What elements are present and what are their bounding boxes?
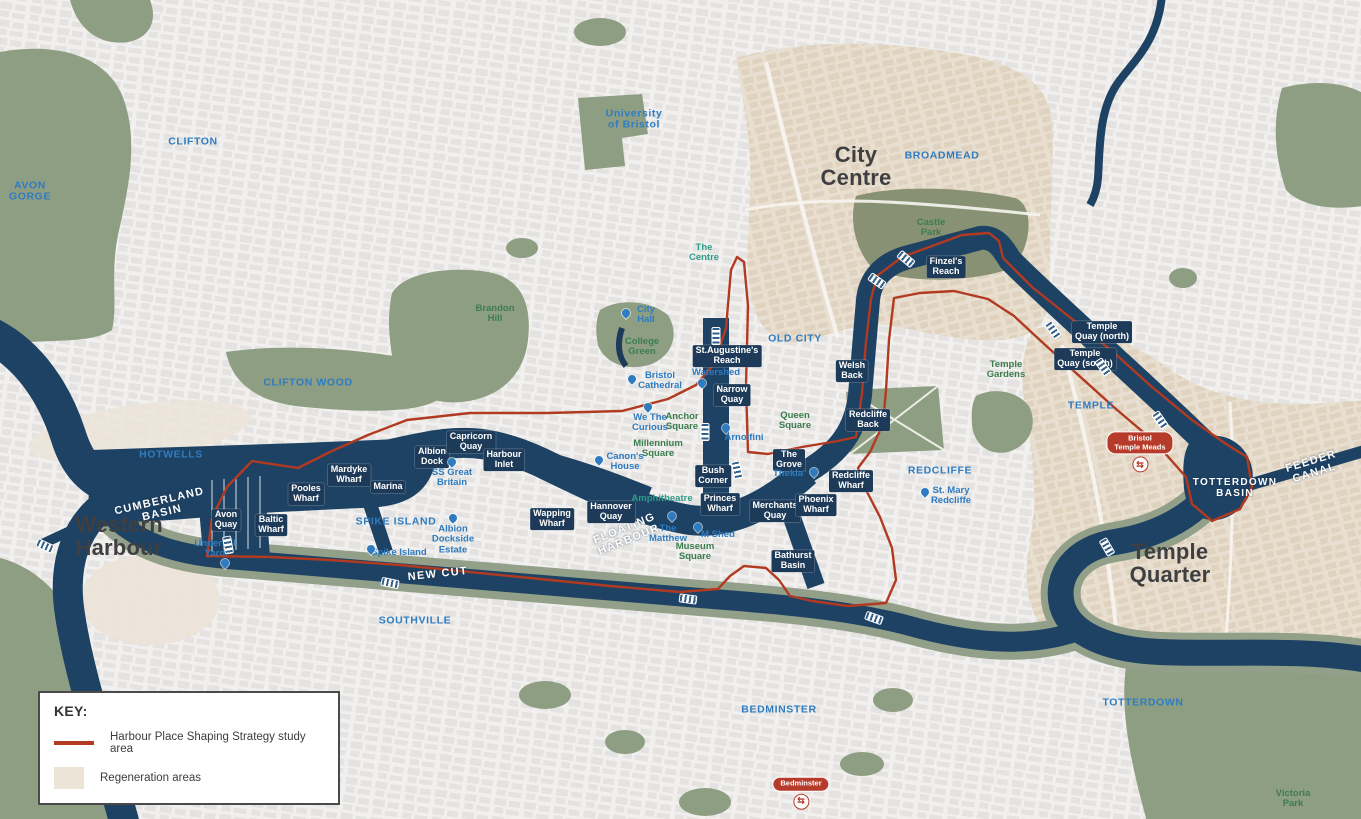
water-label: CUMBERLAND BASIN	[114, 486, 209, 530]
poi-pin-icon	[365, 543, 376, 554]
wharf-label: Pooles Wharf	[288, 483, 324, 505]
district-label: HOTWELLS	[139, 449, 203, 460]
poi-label: Canon's House	[606, 452, 643, 473]
station-marker: Bristol Temple Meads⇆	[1106, 431, 1173, 472]
wharf-label: Merchants Quay	[749, 500, 800, 522]
green-space-label: Brandon Hill	[475, 304, 514, 325]
wharf-label: Wapping Wharf	[530, 508, 574, 530]
district-label: BROADMEAD	[905, 150, 980, 161]
wharf-label: Marina	[370, 481, 405, 493]
wharf-label: Harbour Inlet	[483, 449, 524, 471]
district-label: AVON GORGE	[9, 181, 51, 204]
bridge-marker	[732, 461, 742, 478]
district-label: OLD CITY	[768, 333, 822, 344]
key-item-study-area: Harbour Place Shaping Strategy study are…	[54, 731, 324, 755]
poi-label: Arnolfini	[724, 433, 763, 443]
district-label: REDCLIFFE	[908, 465, 972, 476]
district-label: University of Bristol	[606, 109, 663, 132]
green-space-label: Victoria Park	[1276, 789, 1311, 810]
water-label: FEEDER CANAL	[1284, 449, 1341, 487]
green-space-label: The Centre	[689, 243, 719, 264]
bridge-marker	[865, 612, 882, 624]
bridge-marker	[1153, 411, 1168, 428]
wharf-label: Baltic Wharf	[255, 514, 287, 536]
water-label: NEW CUT	[407, 566, 468, 584]
wharf-label: St.Augustine's Reach	[693, 345, 762, 367]
rail-icon: ⇆	[793, 793, 809, 809]
area-label: City Centre	[821, 143, 892, 189]
green-space-label: Queen Square	[779, 411, 811, 432]
green-space-label: College Green	[625, 337, 659, 358]
poi-pin-icon	[808, 466, 819, 477]
wharf-label: Princes Wharf	[701, 493, 740, 515]
district-label: SPIKE ISLAND	[356, 516, 437, 527]
bridge-marker	[223, 537, 233, 554]
station-name: Bedminster	[772, 777, 829, 792]
poi-label: We The Curious	[632, 413, 668, 434]
bridge-marker	[702, 424, 709, 440]
water-label: FLOATING HARBOUR	[592, 512, 662, 559]
district-label: SOUTHVILLE	[379, 615, 452, 626]
bridge-marker	[868, 274, 885, 289]
key-item-label: Harbour Place Shaping Strategy study are…	[110, 731, 324, 755]
poi-label: SS Great Britain	[432, 468, 472, 489]
poi-label: Bristol Cathedral	[638, 371, 682, 392]
green-space-label: Amphitheatre	[631, 494, 692, 504]
wharf-label: Temple Quay (north)	[1072, 321, 1132, 343]
bridge-marker	[1100, 538, 1114, 555]
poi-pin-icon	[692, 521, 703, 532]
poi-label: Spike Island	[371, 548, 426, 558]
district-label: TOTTERDOWN	[1102, 697, 1183, 708]
key-title: KEY:	[54, 703, 324, 719]
poi-pin-icon	[642, 401, 653, 412]
poi-label: M Shed	[701, 530, 735, 540]
wharf-label: The Grove	[773, 449, 805, 471]
key-item-label: Regeneration areas	[100, 772, 201, 784]
wharf-label: Bush Corner	[695, 465, 731, 487]
bridge-marker	[36, 539, 53, 552]
poi-label: The Matthew	[649, 524, 687, 545]
district-label: CLIFTON	[168, 136, 218, 147]
poi-pin-icon	[219, 557, 230, 568]
wharf-label: Bathurst Basin	[771, 550, 814, 572]
poi-pin-icon	[919, 486, 930, 497]
poi-pin-icon	[593, 454, 604, 465]
green-space-label: Castle Park	[917, 218, 946, 239]
poi-pin-icon	[446, 456, 457, 467]
map-key: KEY: Harbour Place Shaping Strategy stud…	[38, 691, 340, 805]
wharf-label: Redcliffe Wharf	[829, 470, 873, 492]
green-space-label: Millennium Square	[633, 439, 683, 460]
bridge-marker	[381, 578, 398, 588]
poi-label: Thekla	[773, 469, 803, 479]
district-label: BEDMINSTER	[741, 704, 816, 715]
wharf-label: Avon Quay	[212, 509, 241, 531]
bridge-marker	[898, 251, 915, 267]
regeneration-area-swatch	[54, 767, 84, 789]
area-label: Temple Quarter	[1130, 540, 1211, 586]
poi-pin-icon	[720, 422, 731, 433]
green-space-label: Museum Square	[676, 542, 715, 563]
bridge-marker	[1046, 321, 1061, 338]
station-marker: Bedminster⇆	[772, 777, 829, 810]
rail-icon: ⇆	[1132, 457, 1148, 473]
poi-label: St. Mary Redcliffe	[931, 486, 971, 507]
green-space-label: Anchor Square	[665, 412, 698, 433]
poi-label: Albion Dockside Estate	[432, 525, 474, 556]
water-label: TOTTERDOWN BASIN	[1193, 478, 1277, 500]
study-area-line-swatch	[54, 741, 94, 745]
wharf-label: Capricorn Quay	[447, 431, 496, 453]
bridge-marker	[713, 328, 720, 344]
district-label: TEMPLE	[1068, 400, 1114, 411]
wharf-label: Redcliffe Back	[846, 409, 890, 431]
poi-pin-icon	[696, 377, 707, 388]
poi-pin-icon	[666, 510, 677, 521]
green-space-label: Temple Gardens	[987, 360, 1026, 381]
district-label: CLIFTON WOOD	[263, 377, 352, 388]
wharf-label: Narrow Quay	[713, 384, 750, 406]
wharf-label: Phoenix Wharf	[795, 494, 836, 516]
poi-pin-icon	[626, 373, 637, 384]
poi-label: Watershed	[692, 368, 740, 378]
key-item-regeneration: Regeneration areas	[54, 767, 324, 789]
wharf-label: Albion Dock	[415, 446, 449, 468]
wharf-label: Hannover Quay	[587, 501, 635, 523]
poi-pin-icon	[447, 512, 458, 523]
poi-label: City Hall	[637, 305, 655, 326]
wharf-label: Finzel's Reach	[927, 256, 966, 278]
poi-pin-icon	[620, 307, 631, 318]
wharf-label: Welsh Back	[836, 360, 868, 382]
bridge-marker	[1096, 358, 1111, 375]
bridge-marker	[680, 594, 697, 603]
area-label: Western Harbour	[75, 513, 163, 559]
station-name: Bristol Temple Meads	[1106, 431, 1173, 454]
wharf-label: Mardyke Wharf	[328, 464, 371, 486]
map-canvas: Western HarbourCity CentreTemple Quarter…	[0, 0, 1361, 819]
